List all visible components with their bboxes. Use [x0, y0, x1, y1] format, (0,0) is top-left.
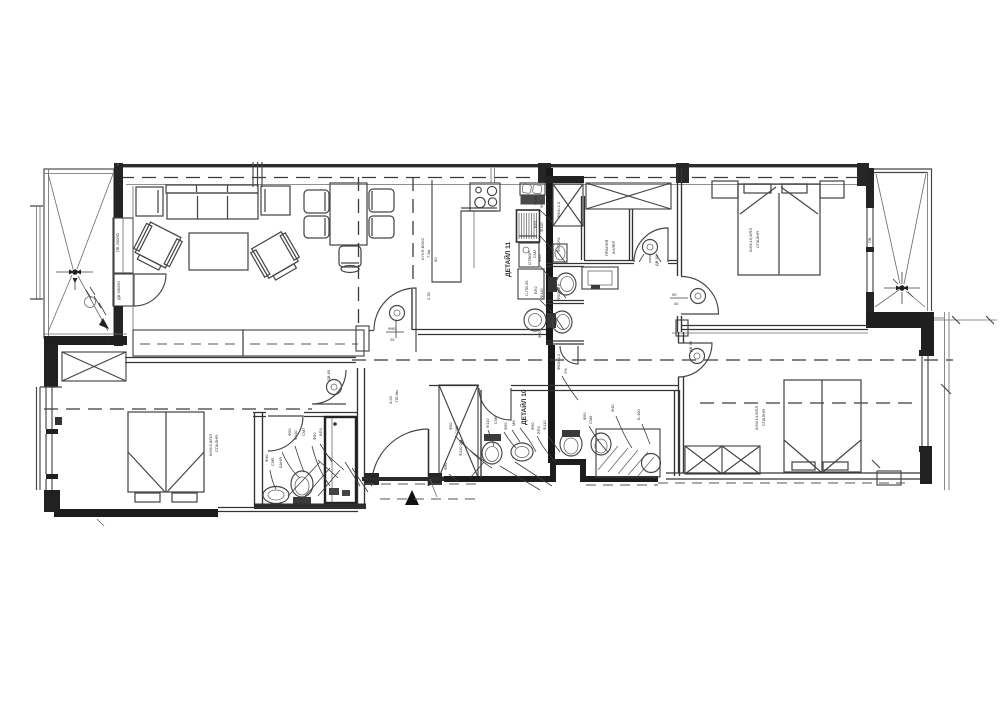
- svg-text:ВП2: ВП2: [533, 285, 538, 294]
- svg-text:СПАЛНЯ: СПАЛНЯ: [214, 435, 219, 452]
- svg-text:КИМ.5,8/ПЛ: КИМ.5,8/ПЛ: [208, 434, 213, 456]
- svg-text:СМ5: СМ5: [270, 457, 275, 466]
- svg-text:СМВ: СМВ: [533, 196, 538, 205]
- svg-text:ПР: ПР: [106, 336, 111, 342]
- svg-text:СПАЛНЯ: СПАЛНЯ: [761, 409, 766, 426]
- svg-text:Ф40: Ф40: [264, 454, 269, 462]
- svg-text:Ф110: Ф110: [293, 430, 298, 440]
- svg-text:Ф50: Ф50: [312, 432, 317, 440]
- svg-text:ДВ 90: ДВ 90: [688, 340, 693, 352]
- svg-text:7.5м: 7.5м: [426, 249, 431, 258]
- svg-text:ПВ 200/90: ПВ 200/90: [115, 232, 120, 252]
- svg-text:Ф110: Ф110: [485, 418, 490, 428]
- svg-text:Ф50: Ф50: [530, 422, 535, 430]
- svg-text:Ф50l=1.2: Ф50l=1.2: [556, 353, 561, 370]
- svg-text:Ф50 2%: Ф50 2%: [556, 237, 561, 252]
- svg-text:КУХН.БОКС: КУХН.БОКС: [420, 237, 425, 260]
- svg-text:КИМ.15,6/ПЛ: КИМ.15,6/ПЛ: [748, 228, 753, 252]
- svg-text:Ф110: Ф110: [542, 420, 547, 430]
- svg-text:ВП4: ВП4: [318, 427, 323, 436]
- svg-text:90: 90: [672, 292, 677, 297]
- svg-text:ДЕТАЙЛ 11: ДЕТАЙЛ 11: [503, 241, 512, 277]
- svg-text:40: 40: [674, 301, 679, 306]
- svg-text:СМ7: СМ7: [301, 427, 306, 436]
- svg-text:ВП3: ВП3: [536, 425, 541, 434]
- svg-text:Ф90: Ф90: [388, 326, 396, 331]
- svg-text:4.64: 4.64: [388, 395, 393, 404]
- svg-text:Ф110: Ф110: [539, 222, 544, 232]
- svg-text:Ф50: Ф50: [503, 422, 508, 430]
- svg-text:Ф50l=1.0: Ф50l=1.0: [556, 201, 561, 218]
- svg-text:Ф50: Ф50: [582, 412, 587, 420]
- svg-text:КИМ.14,6/ПЛ: КИМ.14,6/ПЛ: [754, 406, 759, 430]
- svg-text:ДВ 80: ДВ 80: [326, 369, 331, 381]
- svg-text:ПЛ.8м: ПЛ.8м: [394, 390, 399, 402]
- svg-text:2.30: 2.30: [426, 291, 431, 300]
- svg-text:КИЛЕР: КИЛЕР: [611, 241, 616, 254]
- svg-text:БАНЯ: БАНЯ: [278, 457, 283, 468]
- svg-text:СМ8: СМ8: [454, 425, 459, 434]
- svg-text:ПВ: ПВ: [867, 237, 872, 243]
- svg-text:Ф110: Ф110: [539, 288, 544, 298]
- svg-text:Ф40: Ф40: [610, 404, 615, 412]
- svg-text:СМ9: СМ9: [588, 415, 593, 424]
- svg-text:Ф50: Ф50: [443, 462, 448, 470]
- svg-text:2%: 2%: [563, 368, 568, 374]
- svg-text:Ф50: Ф50: [448, 422, 453, 430]
- svg-text:ДВ 90/250: ДВ 90/250: [116, 281, 121, 300]
- svg-text:Ф50: Ф50: [287, 428, 292, 436]
- svg-text:60: 60: [433, 257, 438, 262]
- svg-text:ДЕТАЙЛ 10: ДЕТАЙЛ 10: [519, 389, 528, 425]
- svg-text:Ф50: Ф50: [537, 254, 542, 262]
- svg-text:ДВ 90: ДВ 90: [654, 254, 659, 266]
- svg-text:СМ6: СМ6: [493, 415, 498, 424]
- svg-text:М8: М8: [511, 420, 516, 426]
- svg-text:Ф50: Ф50: [539, 200, 544, 208]
- svg-text:СПАЛНЯ: СПАЛНЯ: [755, 231, 760, 248]
- svg-text:ПРАЛНЯ: ПРАЛНЯ: [604, 239, 609, 256]
- svg-text:СМ2: СМ2: [532, 249, 537, 258]
- svg-text:Б-100: Б-100: [636, 409, 641, 420]
- svg-text:ВП1: ВП1: [533, 219, 538, 228]
- svg-text:25: 25: [390, 337, 395, 342]
- svg-text:Ф50: Ф50: [537, 330, 542, 338]
- svg-text:С-ПВ-35: С-ПВ-35: [524, 280, 529, 296]
